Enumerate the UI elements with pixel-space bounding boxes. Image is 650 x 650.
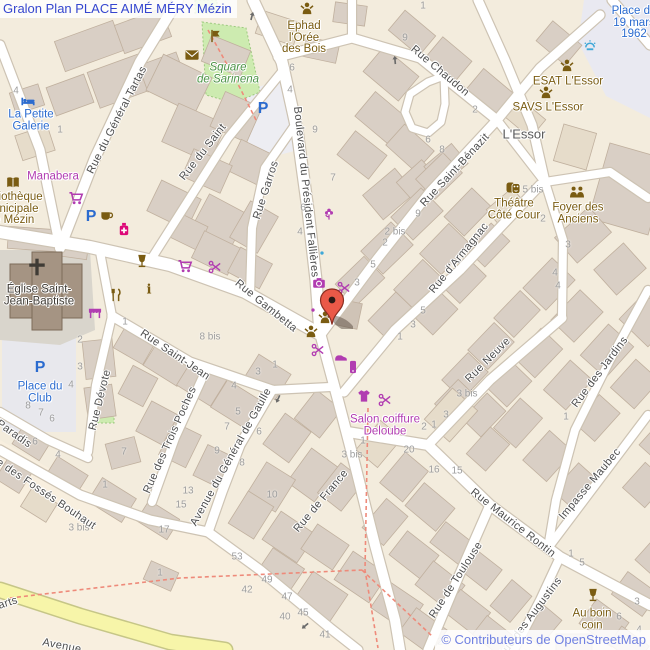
building [105,437,141,470]
building [337,131,387,179]
osm-attribution-link[interactable]: © Contributeurs de OpenStreetMap [435,630,650,650]
building [594,243,646,295]
building [490,580,532,623]
building [553,124,596,170]
map-marker[interactable] [319,287,353,329]
map-canvas[interactable]: Rue du Général TartasRue du SaintRue Gar… [0,0,650,650]
building [46,74,94,116]
building [118,365,158,406]
building [622,462,650,507]
page-title: Gralon Plan PLACE AIMÉ MÉRY Mézin [0,0,237,18]
building [635,539,650,577]
